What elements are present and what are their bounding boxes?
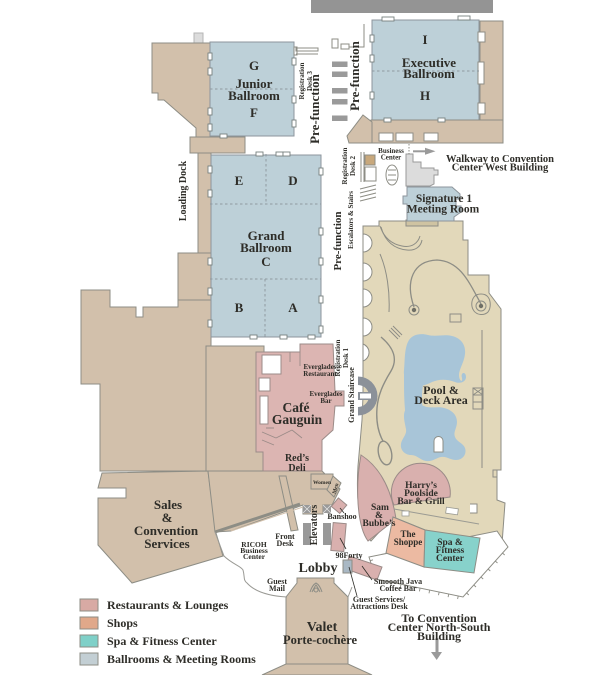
svg-text:Women: Women [313, 480, 331, 486]
svg-text:Desk 3: Desk 3 [306, 70, 314, 91]
svg-text:C: C [261, 254, 270, 269]
svg-text:Attractions Desk: Attractions Desk [350, 602, 408, 611]
svg-text:G: G [249, 58, 259, 73]
svg-text:Coffee Bar: Coffee Bar [379, 584, 417, 593]
svg-text:Pre-function: Pre-function [347, 40, 362, 111]
svg-text:Banshoo: Banshoo [327, 512, 356, 521]
svg-text:Building: Building [417, 629, 461, 643]
svg-text:Loading Dock: Loading Dock [178, 160, 189, 221]
svg-text:98Forty: 98Forty [335, 551, 362, 560]
svg-text:Deck Area: Deck Area [414, 393, 467, 407]
svg-text:Spa & Fitness Center: Spa & Fitness Center [107, 634, 217, 648]
svg-text:Ballroom: Ballroom [228, 88, 280, 103]
svg-text:Shoppe: Shoppe [394, 537, 423, 547]
svg-text:Porte-cochère: Porte-cochère [283, 633, 357, 647]
svg-text:Gauguin: Gauguin [272, 412, 323, 427]
svg-text:Grand Staircase: Grand Staircase [347, 367, 356, 423]
svg-text:D: D [288, 173, 297, 188]
svg-text:Meeting Room: Meeting Room [407, 204, 480, 216]
svg-text:H: H [420, 88, 430, 103]
svg-text:Bar & Grill: Bar & Grill [397, 497, 445, 507]
svg-text:Center: Center [243, 552, 266, 561]
svg-text:Lobby: Lobby [299, 561, 338, 576]
svg-text:Center West Building: Center West Building [452, 163, 549, 174]
svg-text:Desk 1: Desk 1 [342, 347, 350, 368]
svg-text:Services: Services [144, 536, 189, 551]
svg-text:A: A [288, 300, 298, 315]
svg-text:Desk: Desk [277, 539, 294, 548]
svg-text:Restaurants & Lounges: Restaurants & Lounges [107, 598, 229, 612]
svg-text:Restaurant: Restaurant [303, 370, 337, 378]
svg-text:E: E [235, 173, 244, 188]
svg-text:F: F [250, 105, 258, 120]
svg-text:B: B [235, 300, 244, 315]
svg-text:Registration: Registration [341, 147, 349, 184]
svg-text:Registration: Registration [298, 62, 306, 99]
svg-text:Escalators & Stairs: Escalators & Stairs [347, 191, 355, 249]
svg-text:I: I [422, 32, 427, 47]
svg-text:Elevators: Elevators [309, 505, 320, 546]
svg-text:Center: Center [436, 554, 465, 564]
svg-text:Shops: Shops [107, 616, 138, 630]
svg-text:Bar: Bar [320, 397, 331, 405]
svg-text:Mail: Mail [269, 584, 286, 593]
svg-text:Pre-function: Pre-function [332, 211, 344, 270]
svg-text:Ballroom: Ballroom [403, 66, 455, 81]
svg-text:Deli: Deli [288, 463, 305, 474]
svg-text:Ballroom: Ballroom [240, 240, 292, 255]
svg-text:Center: Center [381, 154, 402, 162]
svg-text:Ballrooms & Meeting Rooms: Ballrooms & Meeting Rooms [107, 652, 256, 666]
svg-text:Bubbe’s: Bubbe’s [363, 519, 396, 529]
svg-text:Desk 2: Desk 2 [349, 155, 357, 176]
